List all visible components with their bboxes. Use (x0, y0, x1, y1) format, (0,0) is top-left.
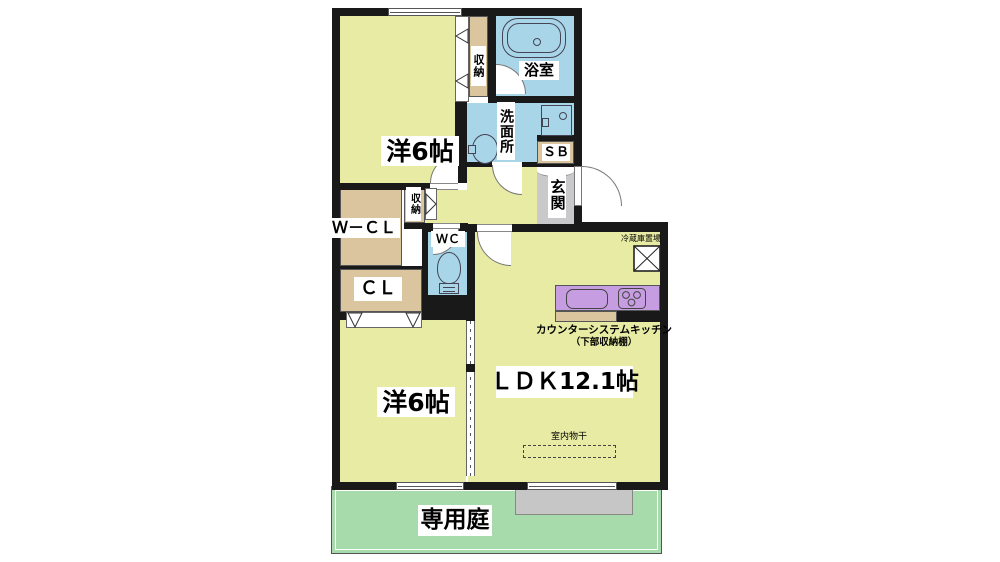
toilet-bowl (437, 252, 461, 284)
bathroom-label: 浴室 (519, 61, 559, 80)
sliding-partition (466, 321, 475, 476)
folding-door-storage-hall-icon (425, 188, 437, 220)
window-bottom-bedroom (396, 482, 464, 490)
storage-top-label: 収納 (471, 46, 486, 86)
window-top-line (390, 12, 460, 13)
sliding-partition-track (470, 321, 471, 476)
bedroom-bottom-label: 洋6帖 (377, 387, 455, 417)
wall-wc-bottom (428, 295, 475, 312)
fridge-space-icon (633, 245, 661, 272)
bedroom-top-label: 洋6帖 (381, 136, 459, 166)
front-door-panel (574, 166, 582, 206)
entrance-label: 玄関 (548, 172, 566, 218)
fridge-space-label: 冷蔵庫置場 (616, 234, 666, 244)
window-bottom-bedroom-line (398, 486, 462, 487)
indoor-drying-box (523, 445, 616, 458)
kitchen-counter-sub-label: （下部収納棚） (556, 337, 652, 349)
toilet-tank-line (443, 287, 455, 292)
shoe-box-label: ＳＢ (542, 144, 570, 161)
folding-door-storage-top-icon (455, 16, 469, 102)
wall-kitchen-side (617, 311, 660, 322)
washing-machine-pan (541, 105, 572, 136)
folding-door-closet-icon (346, 312, 422, 328)
kitchen-sink (566, 289, 608, 309)
washing-pan-corner (542, 118, 549, 127)
indoor-drying-label: 室内物干 (545, 432, 593, 443)
partition-cap-mid (466, 364, 475, 372)
bathtub (502, 18, 566, 58)
bathtub-drain (533, 38, 541, 46)
walk-in-closet-label: Ｗ－ＣＬ (328, 218, 400, 238)
wall-bottom (332, 482, 668, 490)
window-bottom-ldk (527, 482, 617, 490)
storage-hall-label: 収納 (406, 187, 421, 221)
garden-label: 専用庭 (418, 505, 492, 536)
floor-plan: 洋6帖 洋6帖 ＬＤＫ12.1帖 浴室 洗面所 ＳＢ 玄関 Ｗ－ＣＬ ＣＬ ＷＣ… (0, 0, 1000, 562)
partition-cap-top (466, 313, 475, 321)
terrace (515, 489, 633, 515)
wall-ldk-right (660, 222, 668, 490)
ldk-label: ＬＤＫ12.1帖 (496, 366, 633, 398)
washroom-label: 洗面所 (497, 102, 515, 160)
door-arc-entrance (582, 166, 622, 206)
wall-left (332, 8, 340, 490)
wcl-cl-divider (340, 266, 422, 269)
window-bottom-ldk-line (529, 486, 615, 487)
toilet-label: ＷＣ (431, 231, 465, 247)
kitchen-counter-base (555, 311, 617, 322)
closet-label: ＣＬ (354, 277, 402, 301)
door-gap-ldk (477, 224, 512, 232)
kitchen-stove-icon (618, 288, 646, 309)
washing-machine-drain (559, 112, 567, 120)
wall-bedroom-bath-divider (488, 8, 496, 103)
kitchen-counter-label: カウンターシステムキッチン (540, 324, 668, 336)
wash-basin-faucet (468, 145, 476, 154)
window-top (388, 8, 462, 16)
